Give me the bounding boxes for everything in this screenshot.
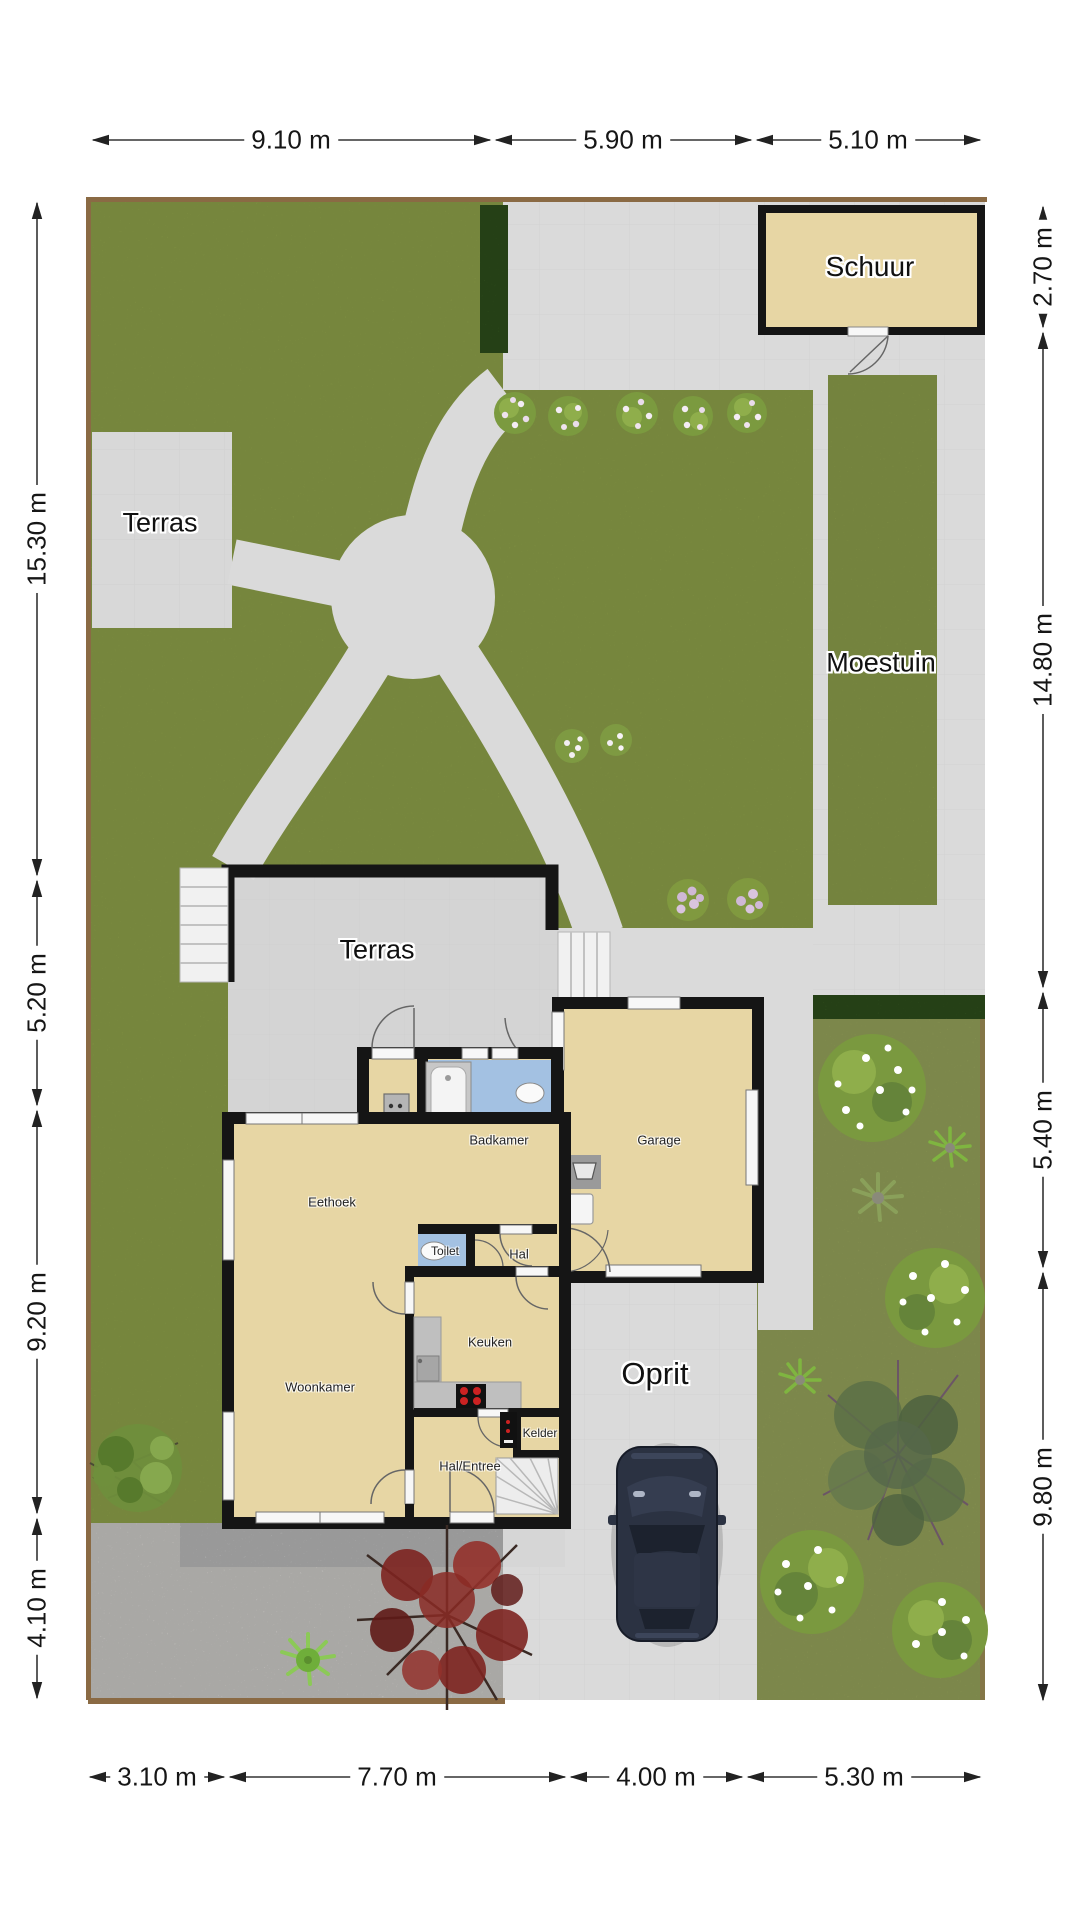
dim-bottom-3: 4.00 m: [609, 1762, 703, 1793]
garage-appliance: [568, 1194, 593, 1224]
site-plan-canvas: Schuur Terras Moestuin Terras Oprit Badk…: [0, 0, 1080, 1920]
shrub-flowering-bottom-1: [760, 1530, 864, 1634]
dim-top-3: 5.10 m: [821, 125, 915, 156]
label-room-garage: Garage: [637, 1133, 680, 1148]
dim-left-3: 9.20 m: [22, 1265, 53, 1359]
front-door: [450, 1512, 494, 1523]
label-vegetable-garden: Moestuin: [826, 648, 936, 679]
label-terrace-garden: Terras: [122, 508, 197, 539]
dim-bottom-1: 3.10 m: [110, 1762, 204, 1793]
label-room-entrance-hall: Hal/Entree: [439, 1459, 500, 1474]
hedge-top: [480, 205, 508, 353]
label-shed: Schuur: [826, 251, 915, 283]
shrub-flowering-right-1: [818, 1034, 926, 1142]
bathroom-window-2: [492, 1048, 518, 1059]
dim-right-1: 2.70 m: [1028, 220, 1059, 314]
label-room-dining-nook: Eethoek: [308, 1195, 356, 1210]
fence-bottom: [88, 1698, 505, 1704]
terrace-stairs-left: [180, 868, 228, 982]
cooktop: [456, 1384, 486, 1408]
garage-window-right: [746, 1090, 758, 1185]
path-hub-circle: [331, 515, 495, 679]
livingroom-door-top: [405, 1282, 414, 1314]
label-terrace-house: Terras: [339, 935, 414, 966]
hedge-bottom-right: [813, 995, 985, 1019]
label-room-kitchen: Keuken: [468, 1335, 512, 1350]
staircase: [496, 1458, 558, 1514]
livingroom-door-bottom: [405, 1470, 414, 1504]
car: [608, 1443, 726, 1647]
bathroom-window-1: [462, 1048, 488, 1059]
dim-left-1: 15.30 m: [22, 485, 53, 593]
vegetable-garden-strip: [828, 375, 937, 905]
label-room-bathroom: Badkamer: [469, 1133, 528, 1148]
label-room-toilet: Toilet: [431, 1244, 459, 1258]
shed-door: [848, 327, 888, 336]
label-room-living-room: Woonkamer: [285, 1380, 355, 1395]
dim-top-2: 5.90 m: [576, 125, 670, 156]
dim-right-3: 5.40 m: [1028, 1083, 1059, 1177]
fence-right-edge: [980, 1005, 985, 1700]
path-terrace-to-hub: [232, 562, 345, 585]
bathroom-hall-door: [500, 1225, 532, 1234]
living-window-left-1: [223, 1160, 234, 1260]
label-driveway: Oprit: [621, 1356, 688, 1392]
utility-door: [372, 1048, 414, 1059]
garage-window-bottom: [606, 1265, 701, 1277]
dim-top-1: 9.10 m: [244, 125, 338, 156]
terrace-stairs-right: [558, 932, 610, 1006]
label-room-cellar: Kelder: [523, 1426, 558, 1440]
dim-right-2: 14.80 m: [1028, 606, 1059, 714]
dim-left-2: 5.20 m: [22, 946, 53, 1040]
dim-right-4: 9.80 m: [1028, 1440, 1059, 1534]
dim-bottom-2: 7.70 m: [350, 1762, 444, 1793]
garage-window-top: [628, 997, 680, 1009]
shrub-flowering-bottom-2: [892, 1582, 988, 1678]
main-block: [223, 1112, 565, 1523]
paving-beside-garage: [758, 1005, 813, 1330]
site-plan-graphic: [0, 0, 1080, 1920]
hall-kitchen-door: [516, 1267, 548, 1276]
shrub-flowering-right-2: [885, 1248, 985, 1348]
dim-bottom-4: 5.30 m: [817, 1762, 911, 1793]
label-room-hall: Hal: [509, 1247, 529, 1262]
bathroom-toilet: [516, 1083, 544, 1103]
dim-left-4: 4.10 m: [22, 1561, 53, 1655]
living-window-left-2: [223, 1412, 234, 1500]
